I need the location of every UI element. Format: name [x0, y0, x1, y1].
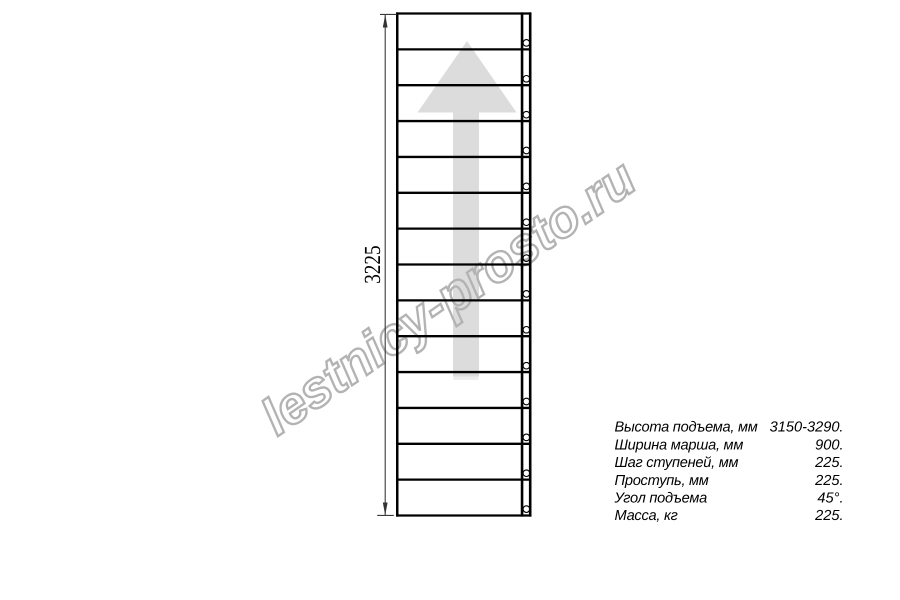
- svg-text:3150-3290.: 3150-3290.: [770, 420, 844, 436]
- svg-text:45°.: 45°.: [817, 491, 843, 507]
- svg-text:Высота подъема, мм: Высота подъема, мм: [615, 420, 758, 436]
- svg-text:Масса, кг: Масса, кг: [615, 508, 678, 524]
- svg-text:Шаг ступеней, мм: Шаг ступеней, мм: [615, 455, 739, 471]
- svg-text:225.: 225.: [814, 473, 843, 489]
- svg-text:Ширина марша, мм: Ширина марша, мм: [615, 437, 744, 453]
- svg-text:3225: 3225: [361, 245, 386, 283]
- svg-text:Проступь, мм: Проступь, мм: [615, 473, 709, 489]
- svg-text:Угол подъема: Угол подъема: [614, 491, 708, 507]
- svg-text:900.: 900.: [815, 437, 843, 453]
- svg-text:225.: 225.: [814, 508, 843, 524]
- svg-text:225.: 225.: [814, 455, 843, 471]
